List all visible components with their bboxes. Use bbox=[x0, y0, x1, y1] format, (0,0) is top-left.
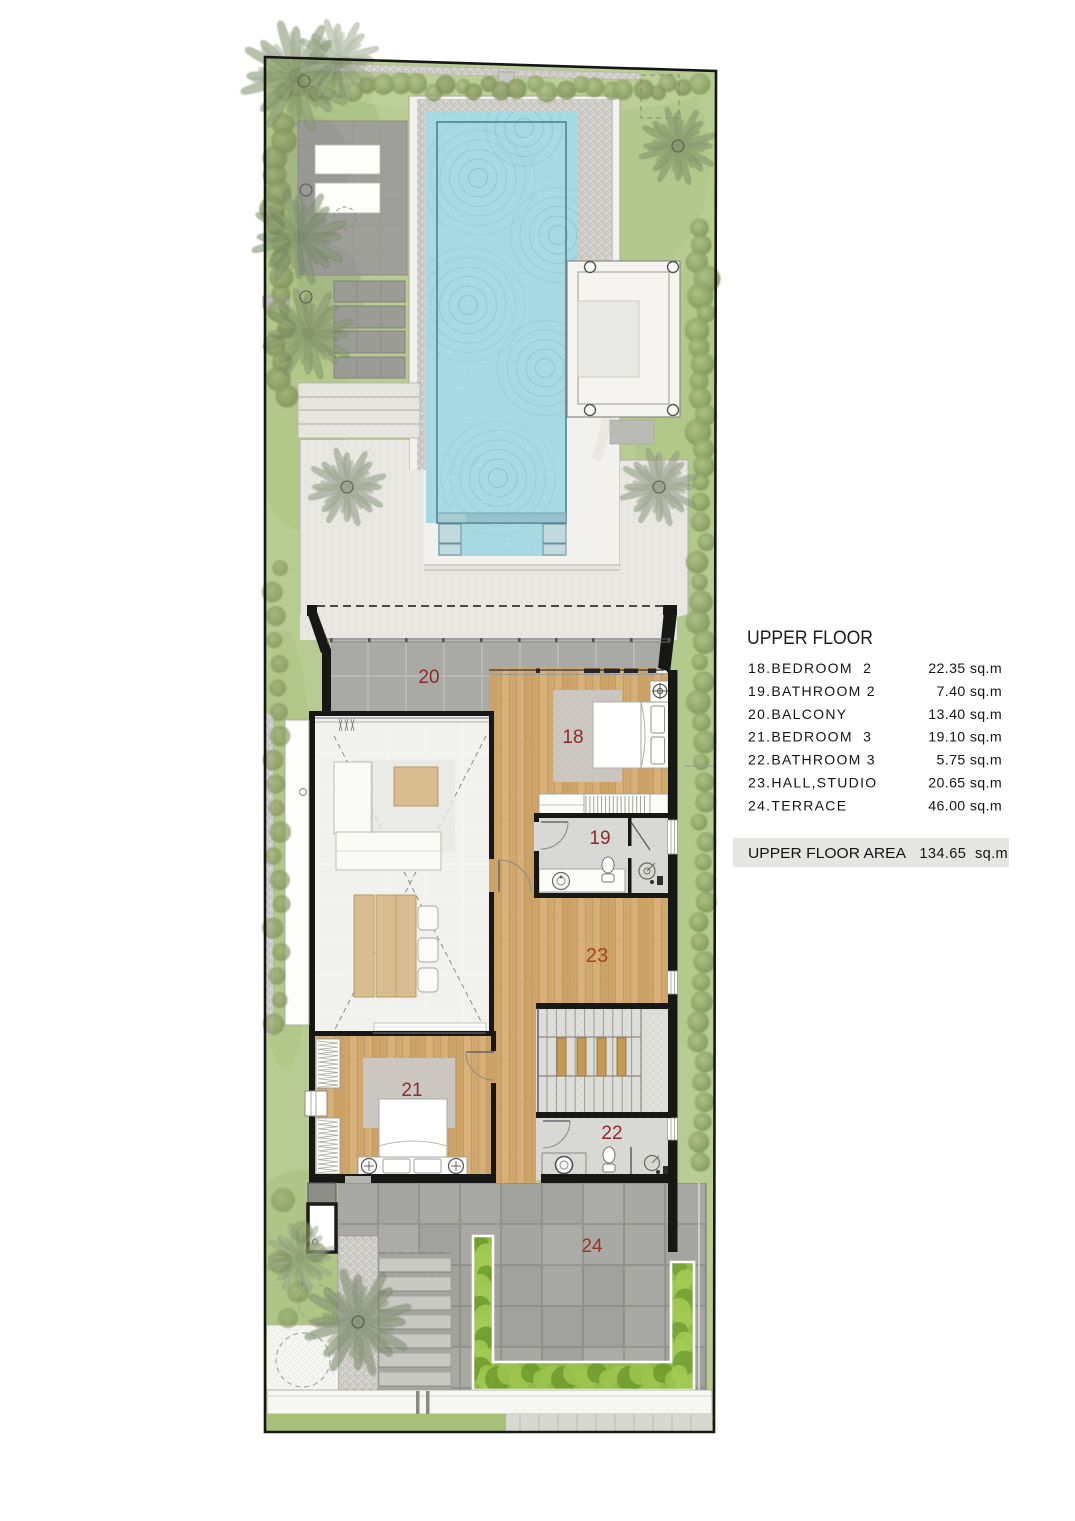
svg-text:21: 21 bbox=[401, 1080, 422, 1101]
svg-text:22.BATHROOM 3: 22.BATHROOM 3 bbox=[748, 752, 876, 768]
svg-text:18: 18 bbox=[562, 727, 583, 748]
svg-text:20: 20 bbox=[418, 667, 439, 688]
svg-text:23.HALL,STUDIO: 23.HALL,STUDIO bbox=[748, 775, 877, 791]
svg-text:13.40 sq.m: 13.40 sq.m bbox=[928, 707, 1002, 723]
svg-text:24: 24 bbox=[581, 1236, 603, 1257]
svg-text:134.65 sq.m: 134.65 sq.m bbox=[919, 846, 1008, 862]
svg-text:19: 19 bbox=[589, 828, 610, 849]
svg-text:7.40 sq.m: 7.40 sq.m bbox=[937, 684, 1002, 700]
svg-text:UPPER FLOOR AREA: UPPER FLOOR AREA bbox=[748, 846, 906, 862]
svg-text:19.10 sq.m: 19.10 sq.m bbox=[928, 730, 1002, 746]
svg-text:23: 23 bbox=[586, 945, 608, 967]
svg-text:20.65 sq.m: 20.65 sq.m bbox=[928, 776, 1002, 792]
svg-text:46.00 sq.m: 46.00 sq.m bbox=[928, 798, 1002, 814]
svg-text:18.BEDROOM 2: 18.BEDROOM 2 bbox=[748, 660, 872, 676]
svg-text:5.75 sq.m: 5.75 sq.m bbox=[937, 753, 1002, 769]
svg-text:20.BALCONY: 20.BALCONY bbox=[748, 706, 847, 722]
svg-text:22: 22 bbox=[601, 1123, 622, 1144]
svg-text:19.BATHROOM 2: 19.BATHROOM 2 bbox=[748, 683, 876, 699]
svg-text:21.BEDROOM 3: 21.BEDROOM 3 bbox=[748, 729, 872, 745]
svg-text:24.TERRACE: 24.TERRACE bbox=[748, 797, 847, 813]
svg-text:22.35 sq.m: 22.35 sq.m bbox=[928, 661, 1002, 677]
svg-text:UPPER FLOOR: UPPER FLOOR bbox=[747, 627, 873, 649]
